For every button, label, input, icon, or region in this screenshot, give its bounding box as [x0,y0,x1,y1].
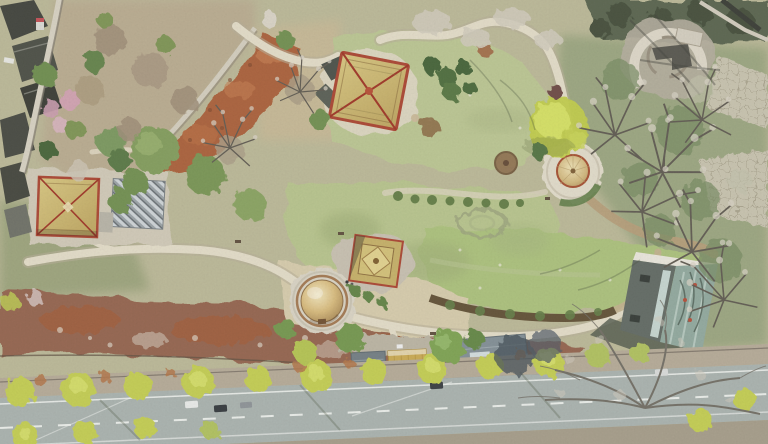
aerial-park-photo [0,0,768,444]
photo-grain [0,0,768,444]
